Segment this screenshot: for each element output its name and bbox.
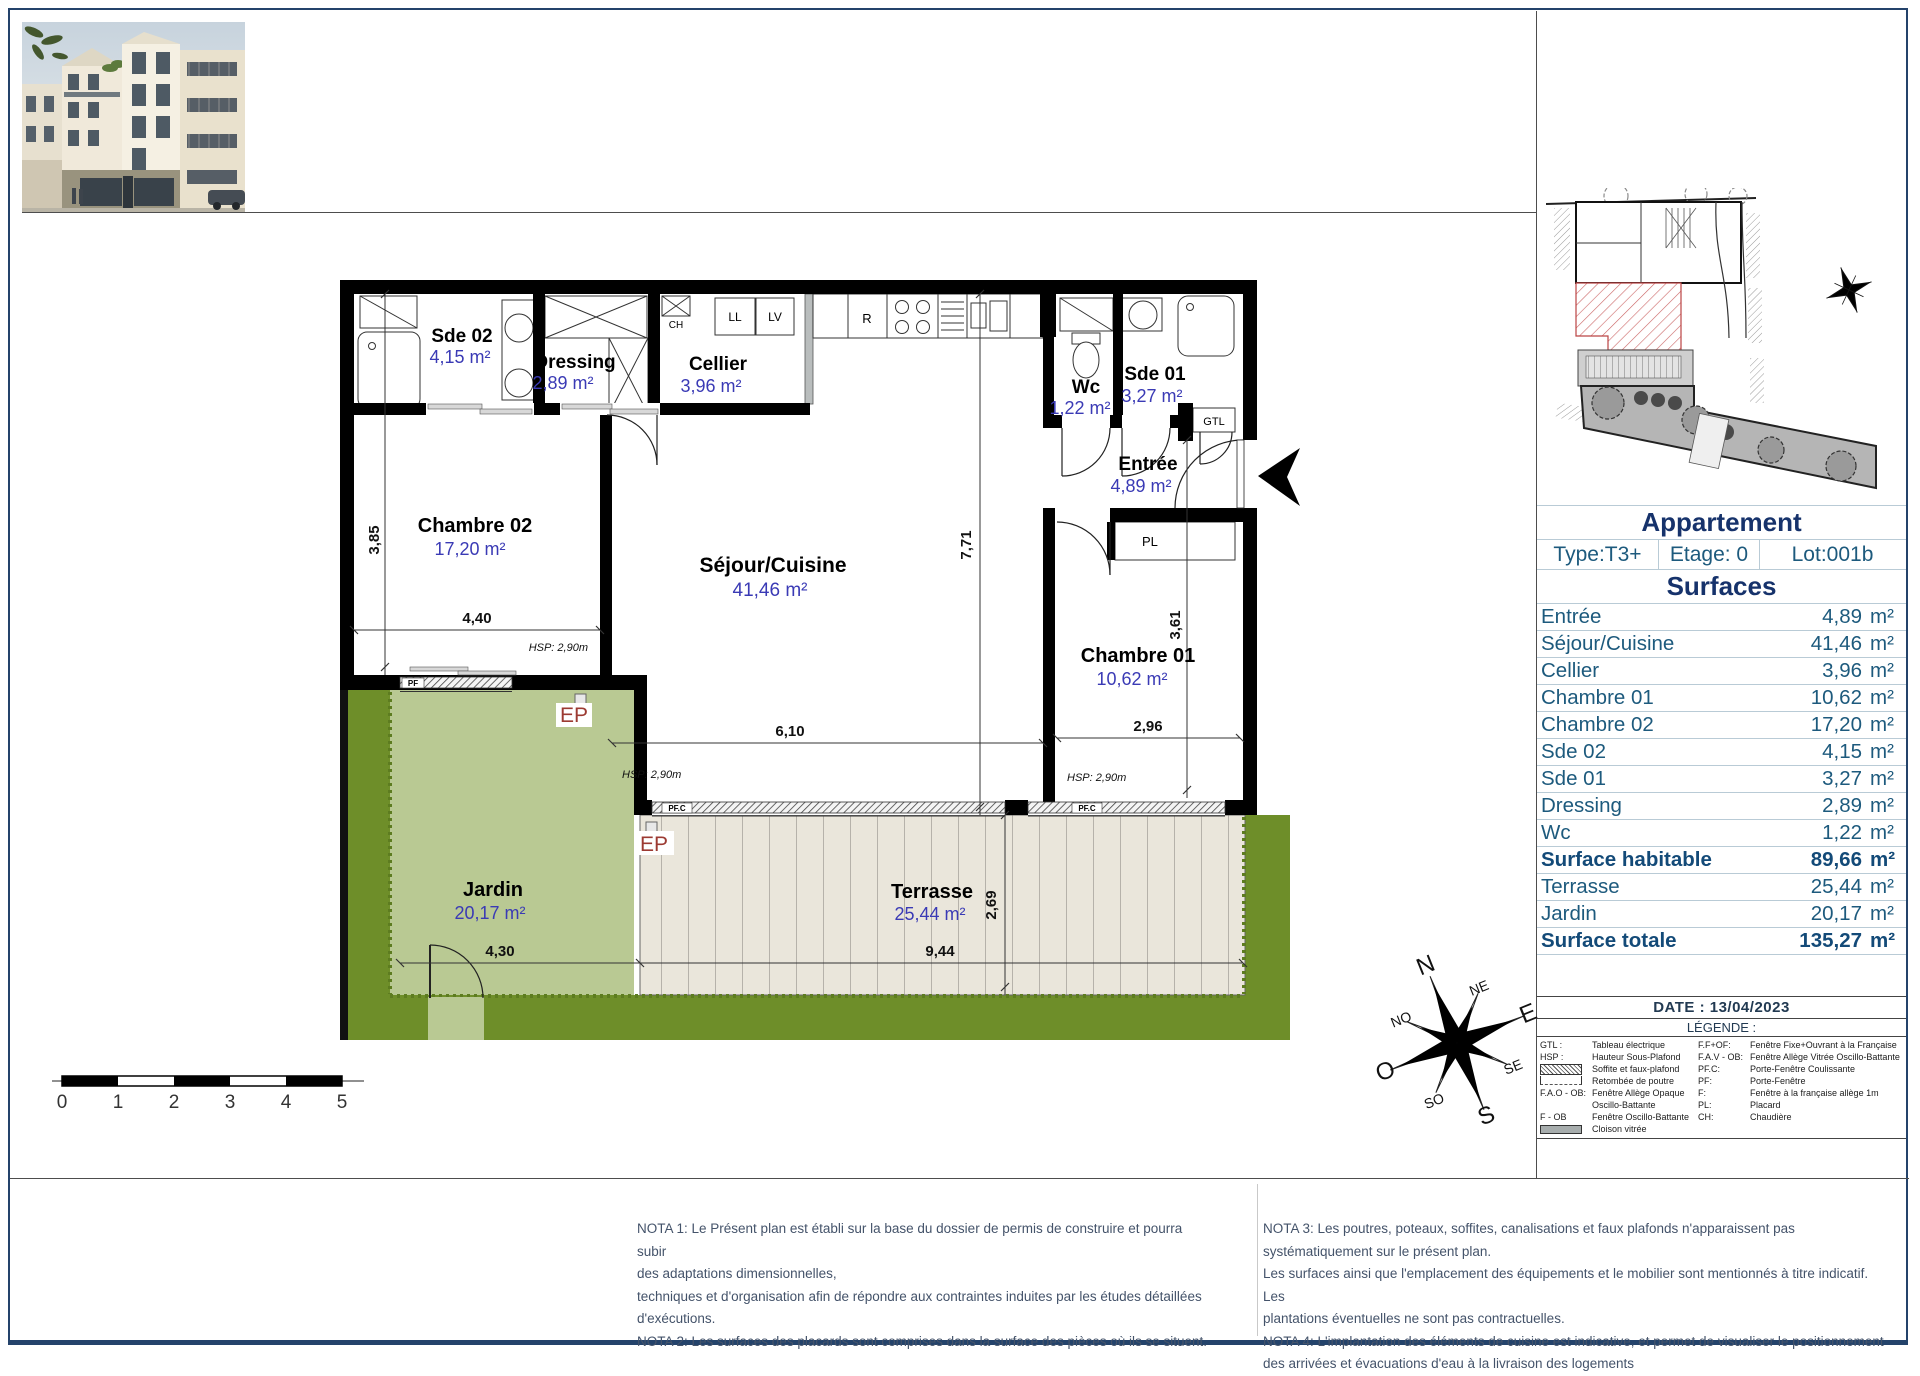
- ep-label-terrasse: EP: [640, 833, 668, 856]
- room-sejour-area: 41,46 m²: [733, 580, 808, 601]
- hsp-sejour: HSP: 2,90m: [622, 769, 681, 781]
- table-row: Entrée4,89m²: [1537, 604, 1906, 631]
- ch-label: CH: [669, 320, 683, 331]
- room-dressing: Dressing: [534, 352, 615, 373]
- pfc-label-sejour: PF.C: [668, 804, 686, 813]
- garden-gate-path: [428, 997, 484, 1040]
- site-plan-thumbnail: [1546, 188, 1902, 500]
- row-unit: m²: [1870, 902, 1903, 926]
- compass-rose: N NE E SE S SO O NO: [1372, 948, 1542, 1138]
- compass-s: S: [1474, 1100, 1499, 1131]
- dim-chambre01-height: 3,61: [1167, 610, 1184, 639]
- glass-partition: [805, 294, 813, 404]
- room-dressing-area: 2,89 m²: [532, 373, 593, 393]
- scale-bar: 0 1 2 3 4 5: [52, 1068, 382, 1116]
- legend-abbr: F.F+OF:: [1698, 1039, 1750, 1051]
- date-label: DATE : 13/04/2023: [1537, 997, 1906, 1019]
- room-chambre01: Chambre 01: [1081, 645, 1196, 667]
- legend-desc: Fenêtre Allège Opaque: [1592, 1087, 1698, 1099]
- entrance-door-leaf: [1237, 440, 1244, 508]
- hsp-chambre02: HSP: 2,90m: [529, 642, 588, 654]
- dim-chambre01-width: 2,96: [1133, 718, 1162, 735]
- ll-label: LL: [728, 310, 742, 324]
- dim-sejour-height: 7,71: [958, 530, 975, 559]
- table-row: Chambre 0110,62m²: [1537, 685, 1906, 712]
- row-value: 3,27: [1606, 767, 1862, 791]
- room-entree: Entrée: [1118, 454, 1177, 475]
- nota-line: d'exécutions.: [637, 1308, 1215, 1331]
- legend-desc: Placard: [1750, 1099, 1902, 1111]
- row-value: 135,27: [1677, 929, 1862, 953]
- table-row: Séjour/Cuisine41,46m²: [1537, 631, 1906, 658]
- entrance-arrow-icon: [1258, 448, 1300, 506]
- room-wc-area: 1,22 m²: [1049, 398, 1110, 418]
- room-jardin-area: 20,17 m²: [454, 903, 525, 923]
- legend-abbr: F.A.V - OB:: [1698, 1051, 1750, 1063]
- scale-tick: 3: [225, 1092, 236, 1113]
- row-value: 10,62: [1654, 686, 1862, 710]
- legend-title: LÉGENDE :: [1537, 1019, 1906, 1037]
- legend-desc: Porte-Fenêtre: [1750, 1075, 1902, 1087]
- dim-terrasse-height: 2,69: [983, 890, 1000, 919]
- row-label: Jardin: [1541, 902, 1597, 926]
- legend-desc: Cloison vitrée: [1592, 1123, 1698, 1135]
- legend-abbr: PF:: [1698, 1075, 1750, 1087]
- scale-tick: 0: [57, 1092, 68, 1113]
- apartment-lot: Lot:001b: [1759, 540, 1905, 569]
- nota-line: NOTA 1: Le Présent plan est établi sur l…: [637, 1218, 1215, 1263]
- table-row-surface-habitable: Surface habitable89,66m²: [1537, 847, 1906, 874]
- table-row: Dressing2,89m²: [1537, 793, 1906, 820]
- legend-desc: Chaudière: [1750, 1111, 1902, 1123]
- row-label: Surface habitable: [1541, 848, 1712, 872]
- table-row: Chambre 0217,20m²: [1537, 712, 1906, 739]
- scale-tick: 1: [113, 1092, 124, 1113]
- pfc-label-chambre01: PF.C: [1078, 804, 1096, 813]
- scale-tick: 2: [169, 1092, 180, 1113]
- row-unit: m²: [1870, 848, 1903, 872]
- row-unit: m²: [1870, 767, 1903, 791]
- legend-abbr: F.A.O - OB:: [1540, 1087, 1592, 1099]
- compass-se: SE: [1501, 1056, 1524, 1078]
- dim-jardin-width: 4,30: [485, 943, 514, 960]
- lv-label: LV: [768, 310, 782, 324]
- legend-desc: Fenêtre Allège Vitrée Oscillo-Battante: [1750, 1051, 1902, 1063]
- notes-column-divider: [1257, 1184, 1258, 1336]
- ep-label-jardin: EP: [560, 704, 588, 727]
- legend-desc: Oscillo-Battante: [1592, 1099, 1698, 1111]
- nota-line: des arrivées et évacuations d'eau à la l…: [1263, 1353, 1888, 1376]
- pf-label: PF: [408, 679, 418, 688]
- legend-desc: Porte-Fenêtre Coulissante: [1750, 1063, 1902, 1075]
- room-wc: Wc: [1072, 377, 1101, 398]
- room-sde02-area: 4,15 m²: [429, 347, 490, 367]
- table-row: Cellier3,96m²: [1537, 658, 1906, 685]
- legend-left-column: GTL :Tableau électrique HSP :Hauteur Sou…: [1540, 1039, 1698, 1135]
- compass-n: N: [1413, 950, 1439, 982]
- table-row: Terrasse25,44m²: [1537, 874, 1906, 901]
- compass-ne: NE: [1467, 977, 1491, 999]
- room-terrasse: Terrasse: [891, 881, 973, 903]
- row-unit: m²: [1870, 821, 1903, 845]
- legend-abbr: HSP :: [1540, 1051, 1592, 1063]
- nota-line: NOTA 4: L'implantation des éléments de c…: [1263, 1331, 1888, 1354]
- pl-label: PL: [1142, 534, 1158, 549]
- table-title: Appartement: [1537, 506, 1906, 540]
- placard: [1115, 522, 1235, 560]
- row-label: Séjour/Cuisine: [1541, 632, 1674, 656]
- legend-abbr: GTL :: [1540, 1039, 1592, 1051]
- surfaces-title: Surfaces: [1537, 570, 1906, 604]
- row-label: Sde 01: [1541, 767, 1606, 791]
- dim-sejour-width: 6,10: [775, 723, 804, 740]
- nota-1-2: NOTA 1: Le Présent plan est établi sur l…: [637, 1218, 1215, 1353]
- surfaces-table: Appartement Type:T3+ Etage: 0 Lot:001b S…: [1537, 505, 1906, 955]
- legend-abbr: [1540, 1099, 1592, 1111]
- nota-line: systématiquement sur le présent plan.: [1263, 1241, 1888, 1264]
- row-value: 4,15: [1606, 740, 1862, 764]
- row-value: 17,20: [1654, 713, 1862, 737]
- row-value: 89,66: [1712, 848, 1862, 872]
- room-chambre02: Chambre 02: [418, 515, 533, 537]
- legend-abbr: PL:: [1698, 1099, 1750, 1111]
- dim-chambre02-height: 3,85: [366, 525, 383, 554]
- legend-desc: Fenêtre Fixe+Ouvrant à la Française: [1750, 1039, 1902, 1051]
- row-unit: m²: [1870, 740, 1903, 764]
- room-cellier-area: 3,96 m²: [680, 376, 741, 396]
- row-value: 4,89: [1601, 605, 1862, 629]
- scale-tick: 5: [337, 1092, 348, 1113]
- apartment-floor-level: Etage: 0: [1658, 540, 1759, 569]
- row-unit: m²: [1870, 713, 1903, 737]
- table-row: Wc1,22m²: [1537, 820, 1906, 847]
- row-unit: m²: [1870, 929, 1903, 953]
- row-value: 20,17: [1597, 902, 1862, 926]
- room-sde02: Sde 02: [431, 326, 492, 347]
- floor-plan: 3,85 4,40 7,71 6,10 3,61 2,96 4,30 9,44 …: [310, 250, 1310, 1060]
- legend-desc: Retombée de poutre: [1592, 1075, 1698, 1087]
- nota-line: techniques et d'organisation afin de rép…: [637, 1286, 1215, 1309]
- refrigerator-label: R: [862, 311, 871, 326]
- nota-line: NOTA 3: Les poutres, poteaux, soffites, …: [1263, 1218, 1888, 1241]
- room-sejour: Séjour/Cuisine: [699, 554, 846, 577]
- legend-right-column: F.F+OF:Fenêtre Fixe+Ouvrant à la Françai…: [1698, 1039, 1902, 1135]
- legend-abbr: CH:: [1698, 1111, 1750, 1123]
- legend-box: DATE : 13/04/2023 LÉGENDE : GTL :Tableau…: [1537, 996, 1906, 1139]
- building-photo: [22, 22, 245, 212]
- row-label: Wc: [1541, 821, 1571, 845]
- row-label: Chambre 02: [1541, 713, 1654, 737]
- row-label: Surface totale: [1541, 929, 1677, 953]
- room-sde01: Sde 01: [1124, 364, 1186, 385]
- legend-abbr: PF.C:: [1698, 1063, 1750, 1075]
- row-value: 3,96: [1599, 659, 1862, 683]
- compass-so: SO: [1422, 1090, 1447, 1112]
- row-label: Entrée: [1541, 605, 1601, 629]
- dim-chambre02-width: 4,40: [462, 610, 491, 627]
- nota-line: Les surfaces ainsi que l'emplacement des…: [1263, 1263, 1888, 1308]
- nota-line: des adaptations dimensionnelles,: [637, 1263, 1215, 1286]
- nota-line: plantations éventuelles ne sont pas cont…: [1263, 1308, 1888, 1331]
- compass-o: O: [1372, 1055, 1399, 1087]
- row-label: Chambre 01: [1541, 686, 1654, 710]
- row-unit: m²: [1870, 659, 1903, 683]
- table-row: Jardin20,17m²: [1537, 901, 1906, 928]
- nota-line: NOTA 2: Les surfaces des placards sont c…: [637, 1331, 1215, 1354]
- hsp-chambre01: HSP: 2,90m: [1067, 772, 1126, 784]
- soffit-swatch-icon: [1540, 1064, 1582, 1075]
- room-terrasse-area: 25,44 m²: [894, 904, 965, 924]
- legend-abbr: F - OB: [1540, 1111, 1592, 1123]
- dim-terrasse-width: 9,44: [925, 943, 955, 960]
- room-chambre02-area: 17,20 m²: [434, 539, 505, 559]
- legend-abbr: F:: [1698, 1087, 1750, 1099]
- row-value: 41,46: [1674, 632, 1862, 656]
- row-unit: m²: [1870, 794, 1903, 818]
- legend-desc: Hauteur Sous-Plafond: [1592, 1051, 1698, 1063]
- compass-e: E: [1516, 998, 1541, 1029]
- nota-3-4: NOTA 3: Les poutres, poteaux, soffites, …: [1263, 1218, 1888, 1376]
- apartment-meta-row: Type:T3+ Etage: 0 Lot:001b: [1537, 540, 1906, 570]
- table-row: Sde 013,27m²: [1537, 766, 1906, 793]
- row-value: 1,22: [1571, 821, 1862, 845]
- table-row-surface-totale: Surface totale135,27m²: [1537, 928, 1906, 955]
- room-jardin: Jardin: [463, 879, 523, 901]
- legend-desc: Soffite et faux-plafond: [1592, 1063, 1698, 1075]
- gtl-label: GTL: [1203, 416, 1224, 428]
- row-unit: m²: [1870, 875, 1903, 899]
- row-label: Dressing: [1541, 794, 1622, 818]
- legend-desc: Tableau électrique: [1592, 1039, 1698, 1051]
- glass-partition-swatch-icon: [1540, 1125, 1582, 1134]
- row-label: Cellier: [1541, 659, 1599, 683]
- notes-divider: [10, 1178, 1909, 1179]
- row-value: 25,44: [1620, 875, 1862, 899]
- scale-tick: 4: [281, 1092, 292, 1113]
- row-label: Sde 02: [1541, 740, 1606, 764]
- header-divider: [22, 212, 1536, 213]
- row-label: Terrasse: [1541, 875, 1620, 899]
- apartment-type: Type:T3+: [1537, 540, 1658, 569]
- legend-desc: Fenêtre Oscillo-Battante: [1592, 1111, 1698, 1123]
- row-unit: m²: [1870, 686, 1903, 710]
- legend-desc: Fenêtre à la française allège 1m: [1750, 1087, 1902, 1099]
- floor-plan-sheet: { "plan": { "rooms": [ {"name":"Sde 02",…: [0, 0, 1920, 1357]
- table-row: Sde 024,15m²: [1537, 739, 1906, 766]
- row-unit: m²: [1870, 632, 1903, 656]
- compass-no: NO: [1388, 1008, 1414, 1031]
- room-sde01-area: 3,27 m²: [1121, 386, 1182, 406]
- row-value: 2,89: [1622, 794, 1862, 818]
- room-cellier: Cellier: [689, 354, 748, 375]
- room-chambre01-area: 10,62 m²: [1096, 669, 1167, 689]
- room-entree-area: 4,89 m²: [1110, 476, 1171, 496]
- row-unit: m²: [1870, 605, 1903, 629]
- beam-swatch-icon: [1540, 1076, 1582, 1085]
